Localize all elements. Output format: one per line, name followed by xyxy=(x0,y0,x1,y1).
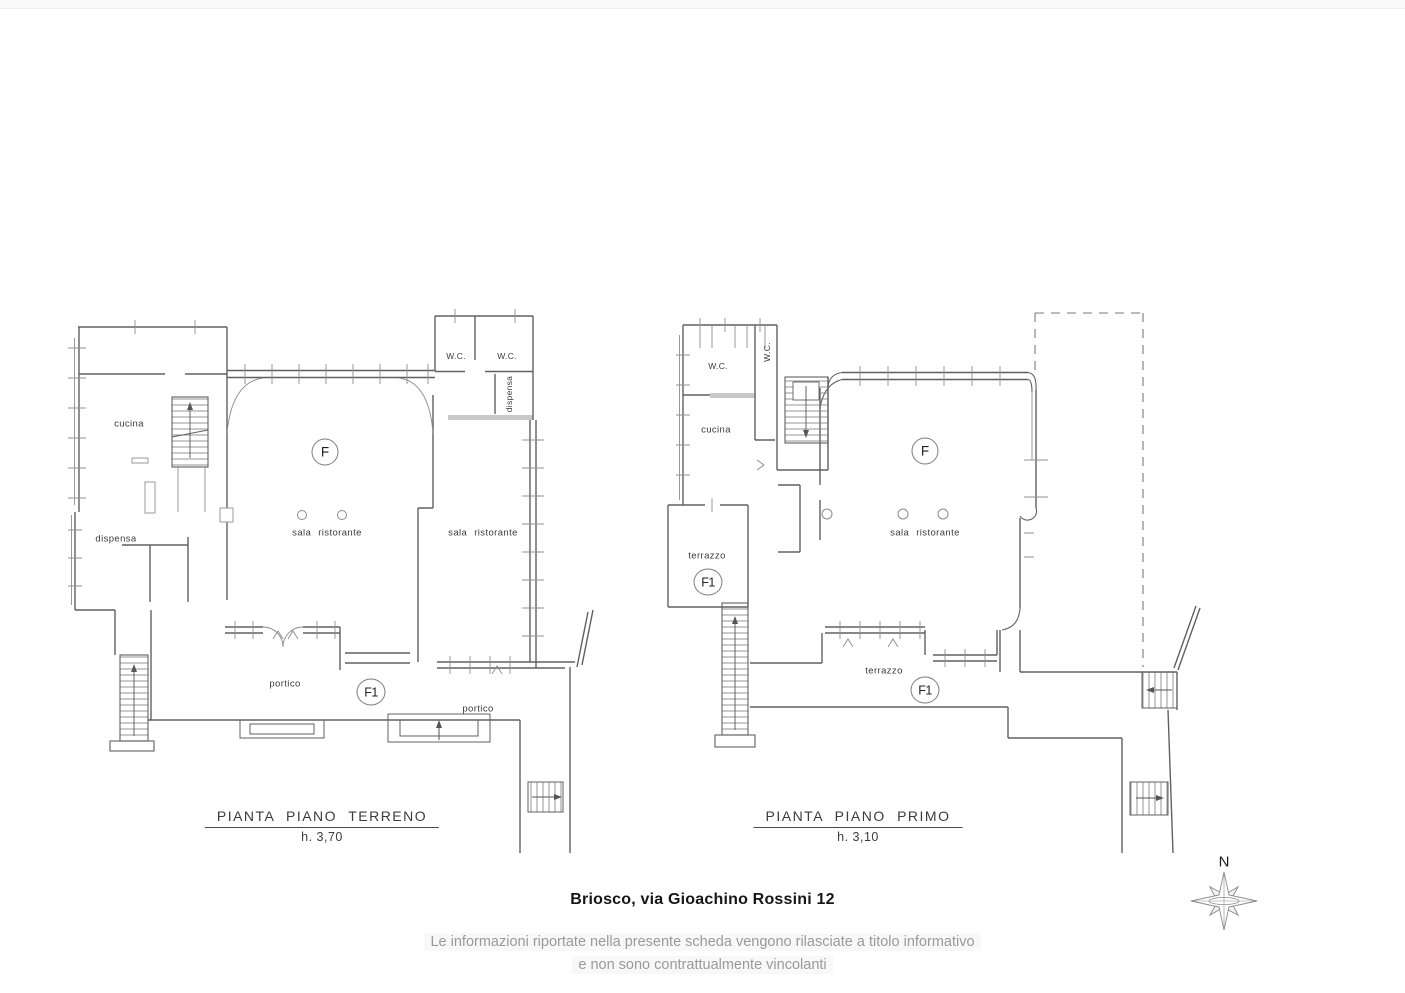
unit-mark-f1: F1 xyxy=(357,679,386,706)
exterior-stairs-right-upper xyxy=(1142,672,1177,708)
room-label-sala-ristorante-center: sala ristorante xyxy=(292,528,362,539)
room-label-sala-ristorante-right: sala ristorante xyxy=(448,528,518,539)
room-label-portico-right: portico xyxy=(462,704,493,715)
floorplan-sheet: cucina dispensa W.C. W.C. dispensa sala … xyxy=(0,0,1405,993)
first-floor-plan-drawing xyxy=(660,300,1260,870)
room-label-portico-left: portico xyxy=(269,679,300,690)
ground-floor-height: h. 3,70 xyxy=(205,830,439,844)
columns xyxy=(822,509,948,519)
walls-main xyxy=(668,325,1200,853)
room-label-dispensa-vertical: dispensa xyxy=(504,376,514,412)
porch-steps xyxy=(240,714,490,742)
gray-wall xyxy=(448,415,533,420)
interior-stairs xyxy=(172,397,208,467)
exterior-stairs-left xyxy=(110,655,154,751)
ground-floor-title: PIANTA PIANO TERRENO xyxy=(205,808,439,828)
unit-mark-f: F xyxy=(912,438,939,465)
door-swing-marks xyxy=(757,460,898,647)
kitchen-fixtures xyxy=(132,458,233,522)
disclaimer-text-2: e non sono contrattualmente vincolanti xyxy=(572,956,832,974)
top-strip xyxy=(0,0,1405,9)
exterior-stairs-right xyxy=(528,782,563,812)
interior-stairs xyxy=(785,377,828,443)
room-label-dispensa: dispensa xyxy=(95,534,136,545)
first-floor-title-block: PIANTA PIANO PRIMO h. 3,10 xyxy=(754,808,963,844)
door-arcs xyxy=(227,378,433,647)
unit-mark-f1-center: F1 xyxy=(911,677,940,704)
window-ticks xyxy=(68,309,544,674)
compass-rose-icon xyxy=(1185,868,1265,938)
exterior-stairs-left xyxy=(715,603,755,747)
disclaimer-text-1: Le informazioni riportate nella presente… xyxy=(424,933,980,951)
room-label-terrazzo-center: terrazzo xyxy=(865,666,903,677)
wall-arcs xyxy=(820,373,1037,631)
room-label-cucina: cucina xyxy=(114,419,144,430)
room-label-wc-2: W.C. xyxy=(497,351,517,361)
disclaimer-line-2: e non sono contrattualmente vincolanti xyxy=(0,957,1405,973)
first-floor-title: PIANTA PIANO PRIMO xyxy=(754,808,963,828)
room-label-wc-1: W.C. xyxy=(708,361,728,371)
first-floor-height: h. 3,10 xyxy=(754,830,963,844)
dashed-outline xyxy=(1035,313,1143,667)
ground-floor-title-block: PIANTA PIANO TERRENO h. 3,70 xyxy=(205,808,439,844)
unit-mark-f: F xyxy=(312,439,339,466)
room-label-wc-1: W.C. xyxy=(446,351,466,361)
room-label-sala-ristorante: sala ristorante xyxy=(890,528,960,539)
exterior-stairs-right-lower xyxy=(1130,782,1168,815)
room-label-terrazzo-left: terrazzo xyxy=(688,551,726,562)
gray-wall xyxy=(710,393,755,398)
room-label-wc-2-vertical: W.C. xyxy=(762,342,772,362)
columns xyxy=(298,511,347,520)
walls-main xyxy=(75,316,593,853)
ground-floor-plan-drawing xyxy=(60,300,620,870)
unit-mark-f1-left: F1 xyxy=(694,569,723,596)
room-label-cucina: cucina xyxy=(701,425,731,436)
